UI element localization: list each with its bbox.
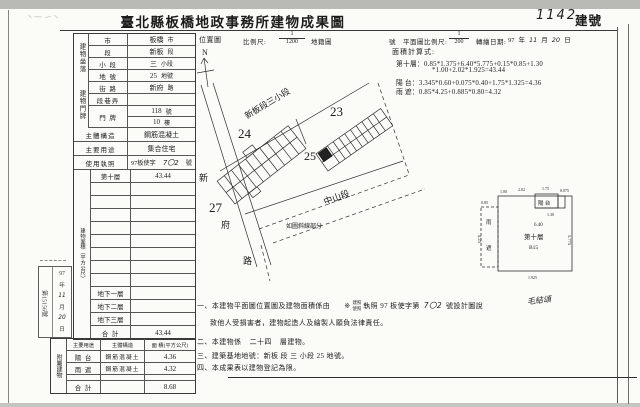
note-1: 一、本建物平面圖位置圖及建物面積係由 ※ 建照使照 執照 97 板使字第 7〇2…: [197, 300, 483, 311]
form-top-border: [60, 30, 617, 31]
redraw-date: 97 年 11 月 20 日: [508, 34, 571, 44]
parcel-label-24: 24: [238, 126, 252, 141]
floorplan-dim: 1.925: [528, 275, 537, 280]
redraw-year: 97: [508, 37, 515, 44]
area-empty-row: [91, 261, 195, 274]
group-label-door: 建物門牌: [74, 82, 89, 128]
scale-numerator: 1: [279, 31, 305, 39]
canopy-char: 遮: [486, 244, 492, 252]
page-edge-line-left: [8, 10, 9, 403]
canopy-char: 雨: [486, 219, 492, 226]
road-name-char: 府: [221, 219, 230, 230]
north-arrow: [197, 58, 214, 87]
annex-building-table: 附屬建物 主要用途 主體構造 面 積(平方公尺) 陽 台 鋼筋混凝土 4.36 …: [50, 338, 196, 394]
area-empty-row: [91, 222, 195, 235]
row-basement-1: 地下一層: [91, 287, 195, 300]
row-lot-number: 地 號25地號: [89, 70, 195, 82]
stamp-date-cell: 97 年 11 月 20 日: [53, 267, 71, 337]
row-usage: 主要用途集合住宅: [74, 142, 195, 156]
unit-floor-plan: 陽 台 雨 遮 6.40 1.30 第十層 B15 5.775 4.25 0.8…: [468, 180, 633, 292]
notes-bottom-rule: [228, 377, 637, 378]
floorplan-unit-label: B15: [529, 245, 538, 251]
drafter-signature: 毛結頌: [526, 294, 551, 307]
stamp-month: 11: [58, 293, 65, 299]
annex-total-row: 合 計 8.68: [67, 381, 195, 393]
road-name-char: 新: [199, 172, 208, 183]
note-license-number: 7〇2: [424, 300, 442, 311]
lot-line: [245, 161, 403, 214]
floorplan-dim: 1.30: [547, 212, 554, 217]
calc-line-floor10-cont: *1.00+2.02*1.925=43.44: [432, 67, 505, 74]
redraw-day-unit: 日: [564, 34, 571, 44]
area-empty-row: [91, 183, 195, 196]
group-label-location: 建物坐落: [74, 34, 89, 82]
group-label-annex: 附屬建物: [51, 339, 67, 393]
stamp-year-unit: 年: [59, 280, 65, 289]
parcel-divider: [296, 119, 306, 144]
group-label-area: 建物面積（平方公尺）: [74, 170, 91, 339]
balcony-label: 陽 台: [538, 199, 551, 207]
scan-edge-bottom: [0, 403, 640, 407]
parcel-label-23: 23: [330, 104, 343, 119]
stamp-number: 第15156號: [41, 270, 50, 338]
area-empty-row: [91, 196, 195, 209]
redraw-month: 11: [529, 36, 537, 44]
row-section: 段新板段: [89, 46, 195, 58]
stamp-number-cell: 第15156號: [39, 267, 53, 337]
map-section-label: 新板段三小段: [243, 86, 292, 121]
row-license: 使用執照97板使字7〇2號: [74, 156, 195, 170]
row-basement-2: 地下二層: [91, 300, 195, 313]
redraw-month-unit: 月: [541, 34, 548, 44]
area-empty-row: [91, 274, 195, 287]
floorplan-dim: 1.75: [542, 186, 549, 191]
reference-mark: ※: [344, 302, 350, 310]
road-name-char: 路: [243, 255, 252, 266]
floorplan-dim: 1.00: [500, 189, 507, 194]
plan-scale-numerator: 1: [449, 31, 469, 39]
row-structure: 主體構造鋼筋混凝土: [74, 128, 195, 142]
row-floor-10: 第十層43.44: [91, 170, 195, 183]
stamp-day-unit: 日: [59, 324, 65, 333]
area-empty-row: [91, 248, 195, 261]
stamp-day: 20: [58, 315, 65, 321]
parcel-label-25: 25: [304, 149, 316, 163]
floorplan-floor-label: 第十層: [524, 232, 544, 241]
building-number-label: 建號: [575, 10, 602, 29]
stamp-month-unit: 月: [59, 302, 65, 311]
row-street: 街 路新府路: [89, 82, 195, 94]
building-info-table: 建物坐落 建物門牌 建物面積（平方公尺） 市板橋市 段新板段 小 段三小段 地 …: [73, 33, 196, 340]
annex-header-row: 主要用途 主體構造 面 積(平方公尺): [67, 339, 195, 351]
row-subsection: 小 段三小段: [89, 58, 195, 70]
receipt-stamp: 第15156號 97 年 11 月 20 日: [38, 266, 72, 338]
note-4: 四、本成果表以建物登記為限。: [197, 363, 301, 373]
page-title: 臺北縣板橋地政事務所建物成果圖: [108, 11, 358, 31]
stamp-dashes: [40, 260, 66, 261]
calc-line-canopy: 雨 遮：0.85*4.25+0.885*0.80=4.32: [396, 86, 501, 96]
floorplan-dim: 0.85: [481, 200, 488, 205]
redraw-year-unit: 年: [519, 34, 526, 44]
scanned-building-survey-document: { "header": { "title": "臺北縣板橋地政事務所建物成果圖"…: [0, 0, 640, 407]
door-label-cell: 門 牌: [89, 106, 128, 128]
annex-row-balcony: 陽 台 鋼筋混凝土 4.36: [67, 351, 195, 363]
canopy-outline: [481, 207, 498, 267]
note-3: 三、建築基地地號：新板 段 三 小段 25 地號。: [197, 351, 349, 361]
parcel-label-27: 27: [209, 200, 223, 215]
road-dashed: [378, 83, 409, 174]
row-lane: 段巷弄: [89, 94, 195, 106]
building-number-value: 1142: [536, 8, 577, 23]
note-2: 二、本建物係 二十四 層建物。: [197, 337, 310, 347]
redraw-date-label: 轉繪日期:: [476, 36, 506, 46]
road-dashed: [261, 245, 270, 281]
corner-scribble: 丶一 ㇀丶: [26, 12, 60, 23]
area-empty-row: [91, 235, 195, 248]
floorplan-dim: 5.775: [567, 235, 572, 246]
license-number-handwritten: 7〇2: [163, 158, 179, 168]
floorplan-dim: 6.40: [534, 223, 543, 228]
license-option-stack: 建照使照: [352, 300, 361, 310]
map-note: 如圖斜線部分: [286, 222, 322, 230]
area-empty-row: [91, 209, 195, 222]
redraw-day: 20: [552, 36, 560, 44]
building-outline-west: [213, 120, 310, 209]
floorplan-dim: 4.25: [477, 235, 482, 244]
calc-title: 面積計算式:: [392, 47, 435, 57]
floorplan-dim: 2.02: [518, 187, 525, 192]
row-basement-3: 地下三層: [91, 313, 195, 326]
road-name-bottom: 中山段: [322, 187, 351, 207]
stamp-year: 97: [59, 271, 65, 277]
north-label: N: [202, 48, 208, 57]
floorplan-dim: 0.075: [560, 188, 569, 193]
note-floor-count: 二十四: [250, 338, 272, 346]
row-city: 市板橋市: [89, 34, 195, 46]
annex-row-canopy: 雨 遮 鋼筋混凝土 4.32: [67, 363, 195, 375]
note-1-continued: 致他人受損害者，建物起造人及繪製人願負法律責任。: [210, 318, 388, 328]
building-outline-east: [316, 108, 393, 171]
